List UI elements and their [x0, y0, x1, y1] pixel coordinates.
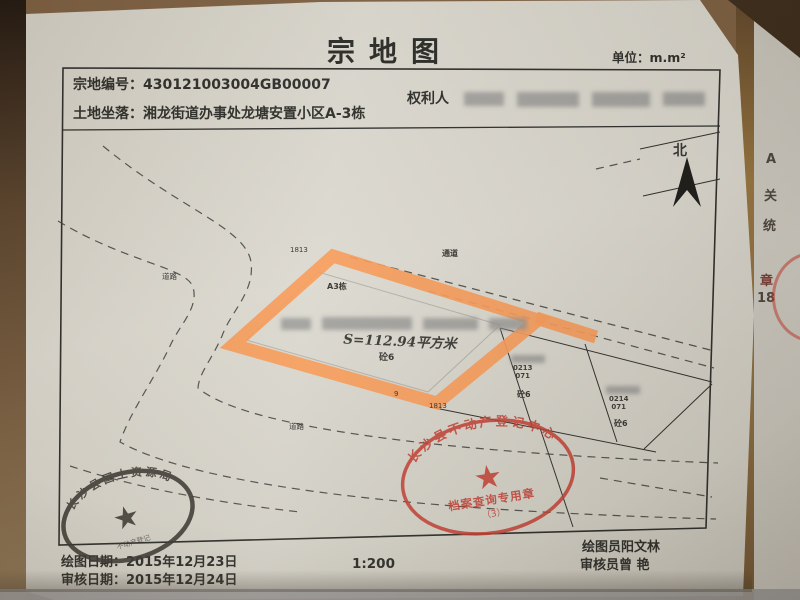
adjacent-page-char: 统: [763, 215, 776, 234]
reviewer-name: 曾 艳: [619, 558, 650, 573]
unit-label: 单位：m.m²: [612, 47, 686, 66]
document-paper: 宗地图 单位：m.m² 宗地编号：430121003004GB00007 土地坐…: [0, 0, 800, 600]
structure-label: 砼6: [517, 389, 531, 400]
redacted-name: [517, 92, 579, 107]
reviewer-row: 审核员曾 艳: [580, 554, 650, 573]
drafter-name: 阳文林: [621, 540, 660, 555]
land-location-value: 湘龙街道办事处龙塘安置小区A-3栋: [143, 106, 365, 122]
drafter-label: 绘图员: [582, 540, 621, 555]
adjacent-page-char: 章: [760, 270, 773, 289]
document-title: 宗地图: [270, 30, 510, 70]
parcel-number-row: 宗地编号：430121003004GB00007: [73, 74, 331, 94]
redacted-text: [281, 318, 311, 330]
road-label: 道路: [162, 271, 177, 282]
map-frame: [59, 68, 720, 545]
table-surface: [0, 589, 800, 600]
point-9-label: 9: [394, 390, 398, 398]
map-scale: 1:200: [352, 556, 395, 572]
header-separator: [63, 126, 720, 130]
north-label: 北: [673, 140, 687, 160]
draw-date-row: 绘图日期：2015年12月23日: [61, 551, 237, 570]
parcel-code2: 071: [513, 372, 532, 380]
redacted-name: [663, 92, 705, 106]
road-label: 道路: [289, 421, 304, 432]
parcel-code: 0213: [513, 364, 532, 372]
parcel-number-label: 宗地编号：: [73, 77, 143, 93]
boundary-point-label: 1813: [429, 402, 447, 410]
passage-label: 通道: [442, 248, 458, 259]
structure-label: 砼6: [614, 418, 628, 429]
reviewer-label: 审核员: [580, 558, 619, 573]
rights-holder-row: 权利人: [407, 88, 705, 108]
redacted-text: [423, 318, 478, 330]
redacted-text: [489, 318, 527, 330]
redacted-name: [464, 92, 504, 106]
drafter-row: 绘图员阳文林: [582, 536, 660, 555]
redacted-text: [606, 386, 640, 394]
north-arrow-icon: [673, 157, 701, 207]
neighbor-parcel-code: 0213 071: [513, 364, 532, 380]
redacted-name: [592, 92, 650, 107]
draw-date-label: 绘图日期：: [61, 555, 126, 570]
redacted-text: [511, 355, 545, 363]
draw-date-value: 2015年12月23日: [126, 555, 237, 570]
adjacent-page-char: 关: [764, 185, 777, 204]
structure-label: 砼6: [379, 350, 394, 363]
land-location-row: 土地坐落：湘龙街道办事处龙塘安置小区A-3栋: [73, 103, 365, 123]
parcel-code2: 071: [609, 403, 628, 411]
rights-holder-label: 权利人: [407, 91, 449, 107]
land-location-label: 土地坐落：: [73, 106, 143, 122]
adjacent-page-char: A: [766, 152, 776, 167]
building-a3-label: A3栋: [327, 281, 347, 292]
review-date-label: 审核日期：: [61, 573, 126, 588]
boundary-point-label: 1813: [290, 246, 308, 254]
neighbor-parcel-code: 0214 071: [609, 395, 628, 411]
parcel-code: 0214: [609, 395, 628, 403]
photographed-parcel-map: A 关 统 章 18: [0, 0, 800, 600]
parcel-number-value: 430121003004GB00007: [143, 77, 331, 93]
review-date-row: 审核日期：2015年12月24日: [61, 569, 237, 588]
review-date-value: 2015年12月24日: [126, 573, 237, 588]
photo-left-edge: [0, 0, 26, 600]
